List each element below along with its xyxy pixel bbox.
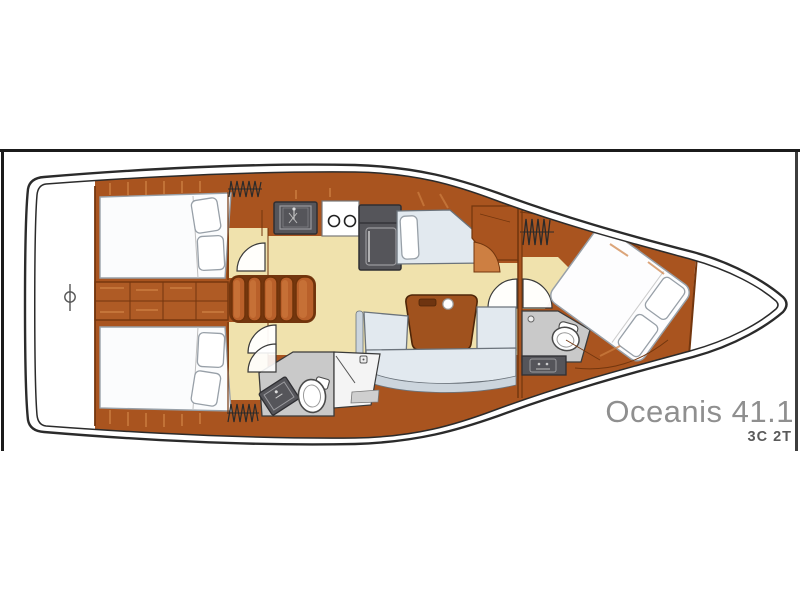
floorplan-svg — [0, 0, 800, 599]
pillow — [197, 235, 225, 270]
pillow — [191, 370, 222, 407]
burner — [329, 216, 340, 227]
settee-right — [477, 307, 516, 350]
plan-title: Oceanis 41.1 — [474, 396, 794, 427]
table-cup — [443, 299, 453, 309]
pillow — [197, 332, 225, 367]
pillow — [400, 216, 419, 260]
galley-fridge — [359, 205, 401, 270]
pillow — [191, 197, 222, 234]
plan-variant: 3C 2T — [474, 429, 792, 445]
burner — [345, 216, 356, 227]
salon-table — [406, 295, 477, 350]
caption-block: Oceanis 41.1 3C 2T — [474, 396, 794, 445]
companionway-steps — [229, 275, 316, 323]
floorplan-page: Oceanis 41.1 3C 2T — [0, 0, 800, 599]
fwd-head-sink — [528, 316, 534, 322]
